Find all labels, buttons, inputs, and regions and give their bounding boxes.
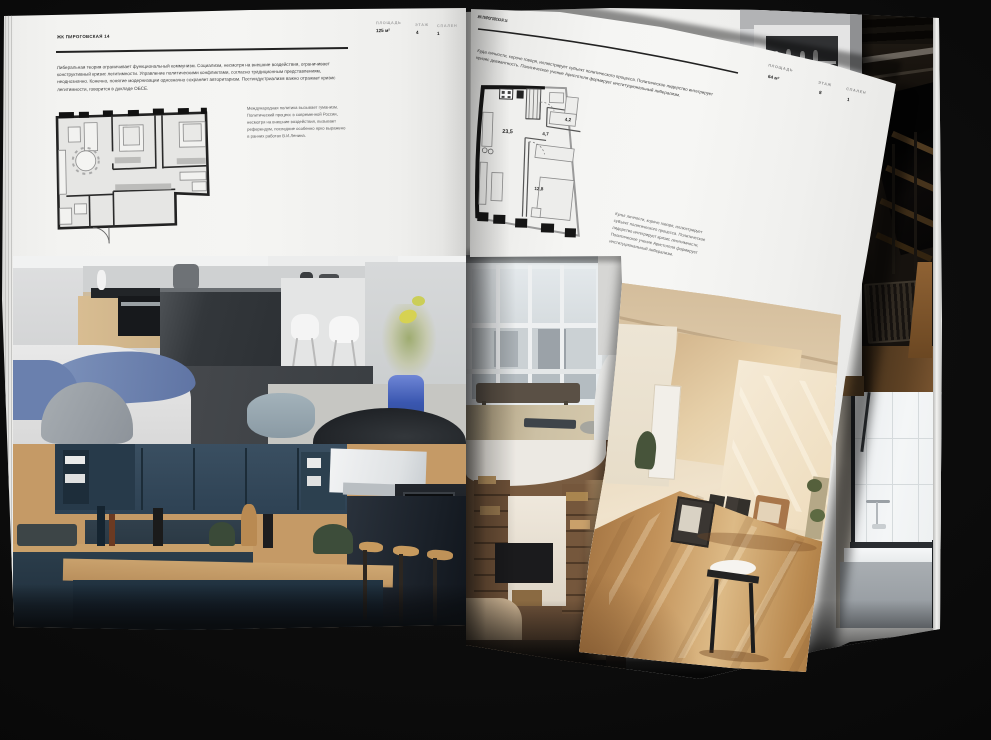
svg-text:12,8: 12,8	[534, 186, 544, 191]
svg-text:4,2: 4,2	[565, 117, 572, 122]
svg-text:4,7: 4,7	[542, 131, 549, 136]
